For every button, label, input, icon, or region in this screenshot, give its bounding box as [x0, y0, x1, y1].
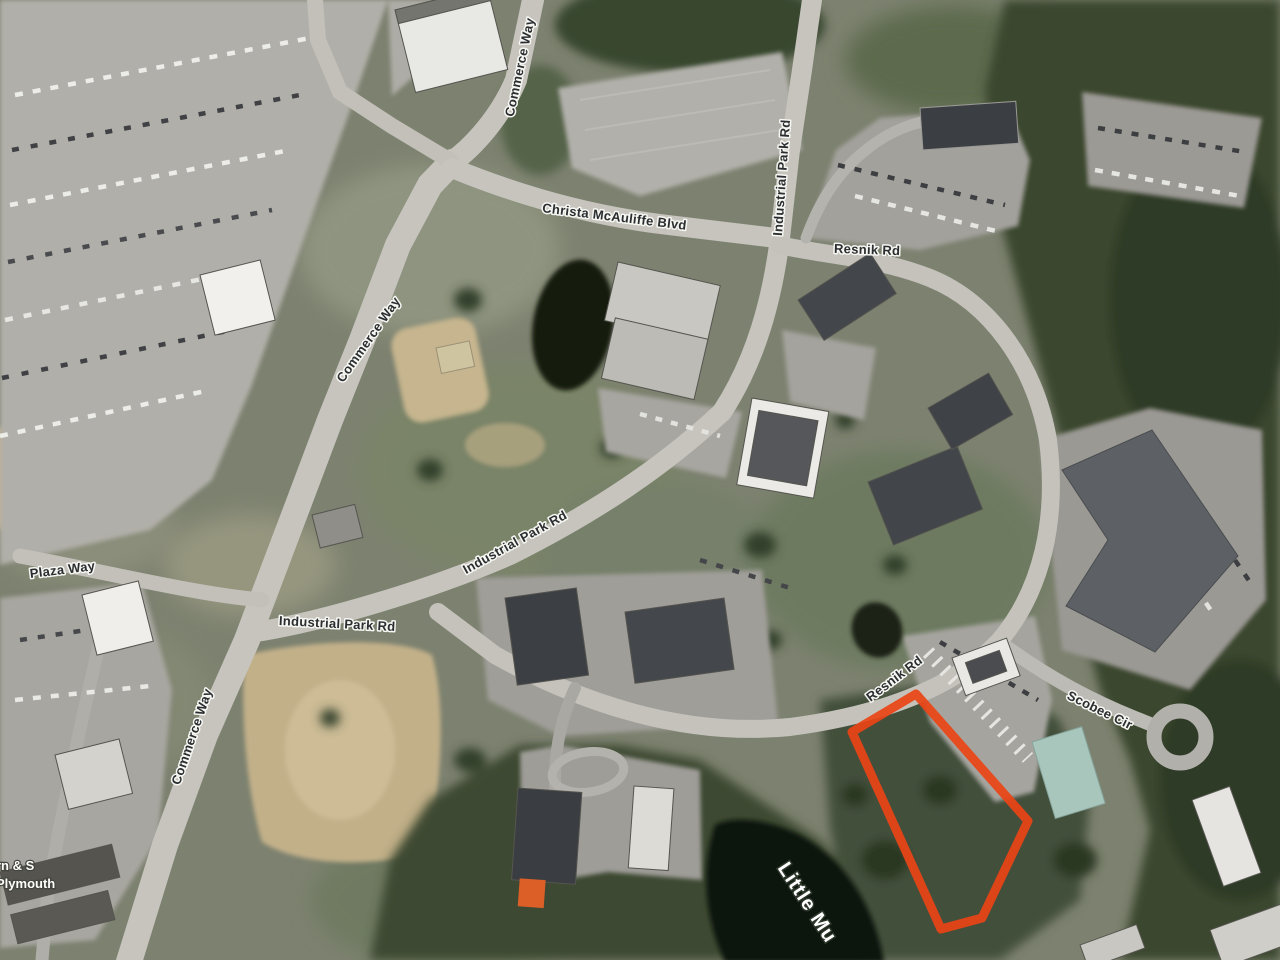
map-viewport[interactable]: Commerce Way Commerce Way Commerce Way C…	[0, 0, 1280, 960]
poi-label-line1: rn & S	[0, 858, 35, 873]
road-label-resnik-rd-north: Resnik Rd	[834, 241, 901, 258]
poi-label-line2: Plymouth	[0, 876, 55, 891]
satellite-map-canvas[interactable]: Commerce Way Commerce Way Commerce Way C…	[0, 0, 1280, 960]
